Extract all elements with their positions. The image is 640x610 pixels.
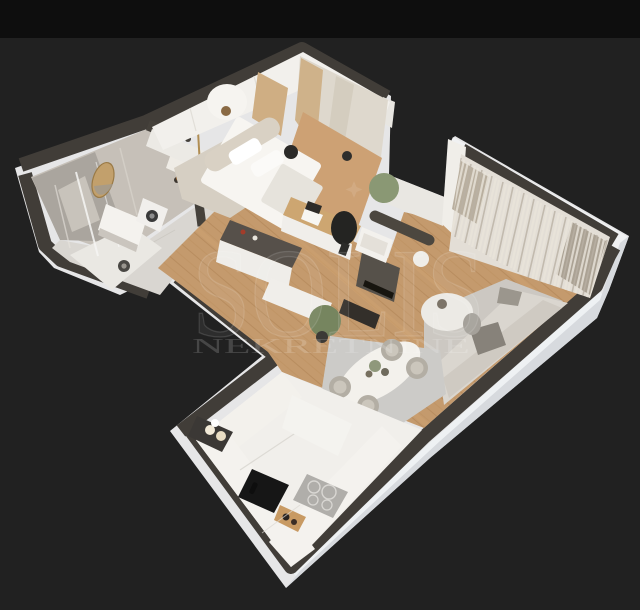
svg-text:NEKRETNINE: NEKRETNINE [192, 334, 470, 358]
